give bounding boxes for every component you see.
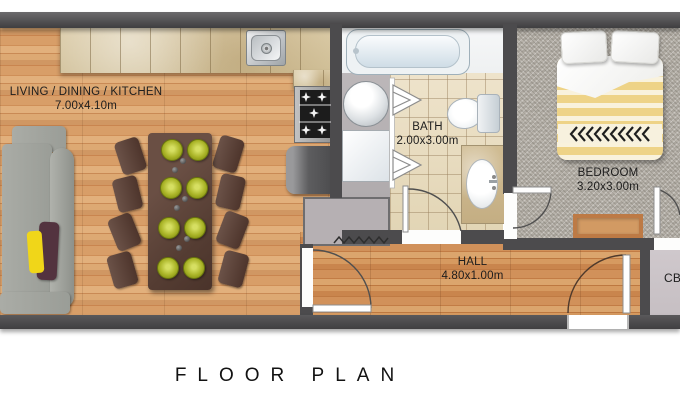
washer-icon bbox=[343, 81, 389, 127]
bath-label: BATH 2.00x3.00m bbox=[385, 120, 470, 148]
page-title: FLOOR PLAN bbox=[150, 365, 430, 387]
bedroom-name: BEDROOM bbox=[563, 166, 653, 180]
plate bbox=[187, 139, 209, 161]
sofa-chaise bbox=[0, 292, 70, 314]
glass bbox=[180, 158, 186, 164]
hall-dims: 4.80x1.00m bbox=[420, 269, 525, 283]
living-room-label: LIVING / DINING / KITCHEN 7.00x4.10m bbox=[4, 85, 168, 113]
hall-door-opening bbox=[302, 248, 313, 307]
entry-door-opening bbox=[567, 315, 629, 329]
glass bbox=[176, 245, 182, 251]
toilet-tank bbox=[477, 94, 500, 133]
sofa-pillow-yellow bbox=[27, 231, 45, 274]
bathtub-icon bbox=[346, 29, 470, 75]
living-room-name: LIVING / DINING / KITCHEN bbox=[4, 85, 168, 99]
sink-drain bbox=[261, 43, 272, 54]
plate bbox=[161, 139, 183, 161]
vanity-basin-icon bbox=[466, 159, 498, 209]
wall-hall-cb bbox=[640, 244, 650, 315]
plate bbox=[157, 257, 179, 279]
bed-pillow bbox=[610, 30, 660, 64]
bed-pillow bbox=[560, 30, 608, 64]
floor-plan-canvas: LIVING / DINING / KITCHEN 7.00x4.10m BAT… bbox=[0, 0, 680, 408]
bedroom-rug bbox=[573, 214, 643, 238]
fridge-icon bbox=[286, 146, 336, 194]
bedroom-label: BEDROOM 3.20x3.00m bbox=[563, 166, 653, 194]
wall-kitchen-bath bbox=[330, 24, 342, 198]
cb-room-name: CB bbox=[664, 271, 680, 285]
kitchen-counter bbox=[60, 26, 338, 73]
cb-room-label: CB bbox=[664, 271, 680, 285]
bedroom-door-opening bbox=[504, 193, 517, 239]
plate bbox=[186, 177, 208, 199]
living-room-dims: 7.00x4.10m bbox=[4, 99, 168, 113]
stove-grate bbox=[300, 90, 332, 138]
bathtub-basin bbox=[355, 35, 460, 68]
bedroom-dims: 3.20x3.00m bbox=[563, 180, 653, 194]
bath-dims: 2.00x3.00m bbox=[385, 134, 470, 148]
glass bbox=[184, 236, 190, 242]
plate bbox=[160, 177, 182, 199]
sink-icon bbox=[246, 30, 286, 66]
bath-name: BATH bbox=[385, 120, 470, 134]
glass bbox=[174, 205, 180, 211]
wall-bath-bedroom bbox=[503, 24, 517, 194]
bedroom-cb-door-opening bbox=[654, 238, 680, 250]
plate bbox=[183, 257, 205, 279]
plate bbox=[158, 217, 180, 239]
glass bbox=[182, 196, 188, 202]
laundry-counter bbox=[342, 130, 390, 182]
hall-label: HALL 4.80x1.00m bbox=[420, 255, 525, 283]
glass bbox=[172, 167, 178, 173]
hall-name: HALL bbox=[420, 255, 525, 269]
bathtub-drain bbox=[353, 48, 359, 54]
bath-door-opening bbox=[402, 230, 461, 244]
